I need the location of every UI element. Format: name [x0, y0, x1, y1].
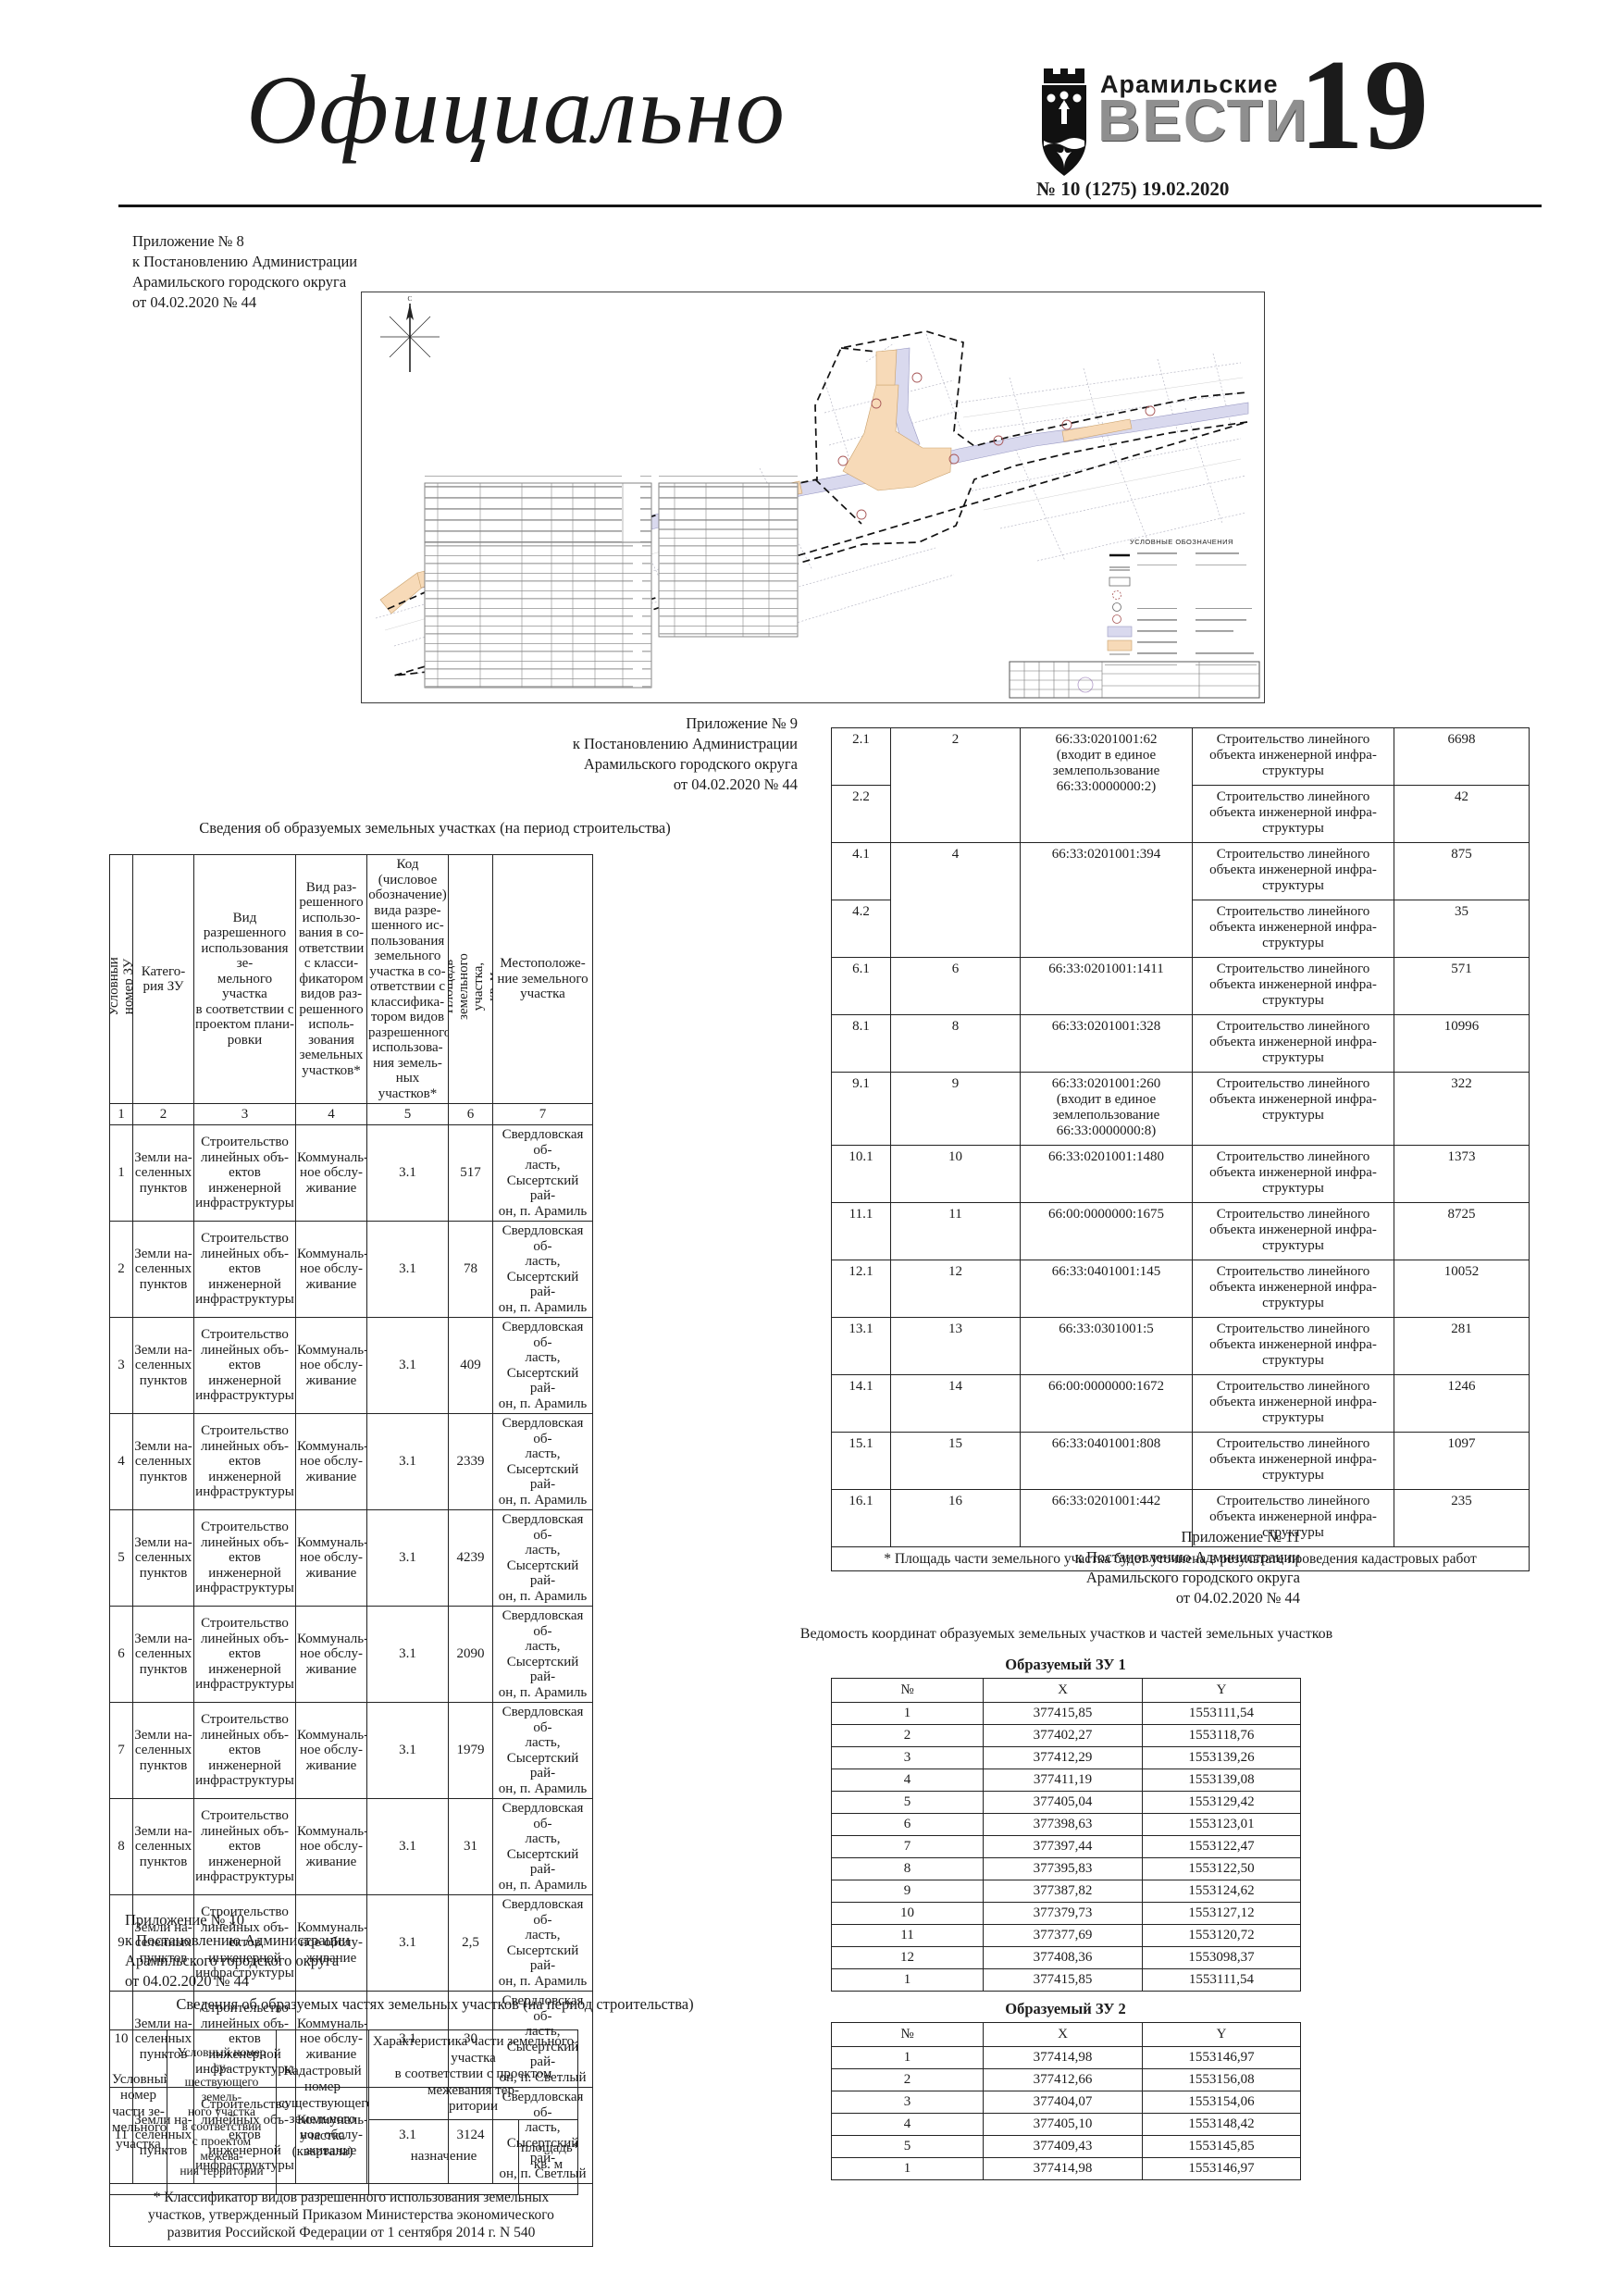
coordinate-row: 9377387,821553124,62: [832, 1880, 1301, 1903]
cell-x: 377387,82: [984, 1880, 1143, 1903]
cell-area: 31: [449, 1799, 493, 1895]
cell-x: 377414,98: [984, 2158, 1143, 2180]
table-row: 12.11266:33:0401001:145Строительство лин…: [832, 1260, 1530, 1318]
cell-number: 6: [110, 1607, 133, 1703]
table-header-row: №XY: [832, 1679, 1301, 1703]
coordinate-row: 5377409,431553145,85: [832, 2136, 1301, 2158]
cell-y: 1553118,76: [1143, 1725, 1301, 1747]
cell-x: 377412,66: [984, 2069, 1143, 2091]
city-coat-of-arms-icon: [1036, 63, 1092, 187]
cell-y: 1553122,47: [1143, 1836, 1301, 1858]
cell-x: 377412,29: [984, 1747, 1143, 1769]
cell-classifier-use: Коммуналь- ное обслу- живание: [296, 1607, 367, 1703]
page-number: 19: [1299, 41, 1429, 170]
brand-name-bottom: ВЕСТИ: [1097, 91, 1309, 150]
cell-code: 3.1: [367, 1125, 449, 1222]
col-header-area: площадь*, кв. м: [519, 2119, 578, 2194]
cell-category: Земли на- селенных пунктов: [133, 1703, 194, 1799]
newspaper-page: Официально Арамильские ВЕСТИ № 10 (1275)…: [0, 0, 1623, 2296]
cell-cadastral-number: 66:33:0201001:62 (входит в единое землеп…: [1021, 728, 1193, 843]
cell-y: 1553111,54: [1143, 1703, 1301, 1725]
col-header-№: №: [832, 1679, 984, 1703]
cell-number: 8: [110, 1799, 133, 1895]
col-header-y: Y: [1143, 2023, 1301, 2047]
cell-area: 10052: [1394, 1260, 1530, 1318]
table-row: 2.1266:33:0201001:62 (входит в единое зе…: [832, 728, 1530, 786]
cell-classifier-use: Коммуналь- ное обслу- живание: [296, 1510, 367, 1607]
cell-part-number: 6.1: [832, 958, 891, 1015]
cell-x: 377415,85: [984, 1703, 1143, 1725]
cell-part-number: 13.1: [832, 1318, 891, 1375]
cell-point-number: 6: [832, 1814, 984, 1836]
table-row: 7Земли на- селенных пунктовСтроительство…: [110, 1703, 593, 1799]
column-number: 2: [133, 1104, 194, 1125]
table-row: 15.11566:33:0401001:808Строительство лин…: [832, 1433, 1530, 1490]
cell-purpose: Строительство линейного объекта инженерн…: [1193, 1375, 1394, 1433]
cell-x: 377414,98: [984, 2047, 1143, 2069]
cell-area: 2339: [449, 1414, 493, 1510]
table-row: 14.11466:00:0000000:1672Строительство ли…: [832, 1375, 1530, 1433]
cell-area: 235: [1394, 1490, 1530, 1547]
cell-part-number: 2.1: [832, 728, 891, 786]
table-row: 11.11166:00:0000000:1675Строительство ли…: [832, 1203, 1530, 1260]
header-divider: [118, 205, 1542, 207]
table-row: 2Земли на- селенных пунктовСтроительство…: [110, 1222, 593, 1318]
cell-area: 322: [1394, 1073, 1530, 1146]
cell-point-number: 1: [832, 2158, 984, 2180]
coordinate-row: 10377379,731553127,12: [832, 1903, 1301, 1925]
cell-code: 3.1: [367, 1703, 449, 1799]
cell-code: 3.1: [367, 1414, 449, 1510]
cell-y: 1553145,85: [1143, 2136, 1301, 2158]
coordinate-row: 5377405,041553129,42: [832, 1792, 1301, 1814]
cell-y: 1553111,54: [1143, 1969, 1301, 1992]
cell-y: 1553148,42: [1143, 2114, 1301, 2136]
coordinate-row: 8377395,831553122,50: [832, 1858, 1301, 1880]
cell-x: 377377,69: [984, 1925, 1143, 1947]
col-header-code: Код (числовое обозначение) вида разре- ш…: [367, 855, 449, 1104]
column-number: 7: [493, 1104, 593, 1125]
cell-area: 35: [1394, 900, 1530, 958]
cell-cadastral-number: 66:00:0000000:1675: [1021, 1203, 1193, 1260]
cell-number: 4: [110, 1414, 133, 1510]
cell-y: 1553124,62: [1143, 1880, 1301, 1903]
cell-purpose: Строительство линейного объекта инженерн…: [1193, 1260, 1394, 1318]
cell-part-number: 4.1: [832, 843, 891, 900]
cell-x: 377398,63: [984, 1814, 1143, 1836]
cell-category: Земли на- селенных пунктов: [133, 1510, 194, 1607]
cell-code: 3.1: [367, 1799, 449, 1895]
cell-classifier-use: Коммуналь- ное обслу- живание: [296, 1703, 367, 1799]
cell-permitted-use: Строительство линейных объ- ектов инжене…: [194, 1510, 296, 1607]
column-number: 5: [367, 1104, 449, 1125]
cell-area: 517: [449, 1125, 493, 1222]
cell-part-number: 12.1: [832, 1260, 891, 1318]
cell-cadastral-number: 66:33:0201001:1411: [1021, 958, 1193, 1015]
col-header-existing-parcel: Условный номер су- ществующего земель- н…: [167, 2030, 277, 2195]
table-header-row: Условный номер ЗУ Катего- рия ЗУ Вид раз…: [110, 855, 593, 1104]
cell-classifier-use: Коммуналь- ное обслу- живание: [296, 1222, 367, 1318]
cell-area: 6698: [1394, 728, 1530, 786]
cell-area: 281: [1394, 1318, 1530, 1375]
cell-y: 1553146,97: [1143, 2047, 1301, 2069]
coordinate-row: 1377414,981553146,97: [832, 2158, 1301, 2180]
appendix-9-caption: Приложение № 9 к Постановлению Администр…: [435, 714, 798, 795]
table-row: 8Земли на- селенных пунктовСтроительство…: [110, 1799, 593, 1895]
coordinate-row: 12377408,361553098,37: [832, 1947, 1301, 1969]
coordinate-row: 4377411,191553139,08: [832, 1769, 1301, 1792]
cell-purpose: Строительство линейного объекта инженерн…: [1193, 1318, 1394, 1375]
coordinates-list-title: Ведомость координат образуемых земельных…: [796, 1626, 1337, 1643]
column-number: 4: [296, 1104, 367, 1125]
cell-x: 377405,10: [984, 2114, 1143, 2136]
cell-y: 1553139,26: [1143, 1747, 1301, 1769]
zu1-heading: Образуемый ЗУ 1: [831, 1656, 1300, 1674]
col-header-characteristic: Характеристика части земельного участка …: [369, 2030, 578, 2120]
cell-point-number: 7: [832, 1836, 984, 1858]
column-number: 3: [194, 1104, 296, 1125]
cell-parcel-number: 4: [891, 843, 1021, 958]
cell-y: 1553129,42: [1143, 1792, 1301, 1814]
cell-x: 377395,83: [984, 1858, 1143, 1880]
cell-category: Земли на- селенных пунктов: [133, 1414, 194, 1510]
zu2-heading: Образуемый ЗУ 2: [831, 2000, 1300, 2018]
coordinate-row: 1377414,981553146,97: [832, 2047, 1301, 2069]
coordinate-row: 1377415,851553111,54: [832, 1703, 1301, 1725]
cell-area: 8725: [1394, 1203, 1530, 1260]
cell-number: 2: [110, 1222, 133, 1318]
cell-y: 1553120,72: [1143, 1925, 1301, 1947]
cell-code: 3.1: [367, 1318, 449, 1414]
table-row: 4.1466:33:0201001:394Строительство линей…: [832, 843, 1530, 900]
cell-y: 1553156,08: [1143, 2069, 1301, 2091]
cell-category: Земли на- селенных пунктов: [133, 1125, 194, 1222]
cell-point-number: 12: [832, 1947, 984, 1969]
cell-parcel-number: 9: [891, 1073, 1021, 1146]
cell-parcel-number: 11: [891, 1203, 1021, 1260]
table-row: 5Земли на- селенных пунктовСтроительство…: [110, 1510, 593, 1607]
compass-icon: С: [380, 295, 440, 372]
cell-category: Земли на- селенных пунктов: [133, 1799, 194, 1895]
cell-classifier-use: Коммуналь- ное обслу- живание: [296, 1125, 367, 1222]
cell-area: 2090: [449, 1607, 493, 1703]
cell-area: 1979: [449, 1703, 493, 1799]
col-header-x: X: [984, 1679, 1143, 1703]
zu-table-title: Сведения об образуемых земельных участка…: [83, 819, 787, 838]
cell-cadastral-number: 66:33:0201001:1480: [1021, 1146, 1193, 1203]
cell-point-number: 1: [832, 1703, 984, 1725]
table-row: 9.1966:33:0201001:260 (входит в единое з…: [832, 1073, 1530, 1146]
cell-cadastral-number: 66:00:0000000:1672: [1021, 1375, 1193, 1433]
cell-category: Земли на- селенных пунктов: [133, 1318, 194, 1414]
table-row: 6Земли на- селенных пунктовСтроительство…: [110, 1607, 593, 1703]
cell-code: 3.1: [367, 1510, 449, 1607]
cell-cadastral-number: 66:33:0201001:394: [1021, 843, 1193, 958]
cell-permitted-use: Строительство линейных объ- ектов инжене…: [194, 1414, 296, 1510]
col-header-purpose: назначение: [369, 2119, 519, 2194]
cell-point-number: 3: [832, 1747, 984, 1769]
cell-purpose: Строительство линейного объекта инженерн…: [1193, 728, 1394, 786]
cell-x: 377408,36: [984, 1947, 1143, 1969]
cell-purpose: Строительство линейного объекта инженерн…: [1193, 900, 1394, 958]
cell-code: 3.1: [367, 1222, 449, 1318]
cell-parcel-number: 14: [891, 1375, 1021, 1433]
table-header-row: №XY: [832, 2023, 1301, 2047]
cell-point-number: 2: [832, 2069, 984, 2091]
coordinate-row: 4377405,101553148,42: [832, 2114, 1301, 2136]
parts-table-title: Сведения об образуемых частях земельных …: [83, 1995, 787, 2014]
cell-code: 3.1: [367, 1895, 449, 1992]
cell-area: 4239: [449, 1510, 493, 1607]
cell-x: 377379,73: [984, 1903, 1143, 1925]
parts-header-table: Условный номер части зе- мельного участк…: [109, 2029, 578, 2195]
coordinate-row: 3377412,291553139,26: [832, 1747, 1301, 1769]
cell-x: 377405,04: [984, 1792, 1143, 1814]
column-number: 1: [110, 1104, 133, 1125]
cell-category: Земли на- селенных пунктов: [133, 1222, 194, 1318]
cell-location: Свердловская об- ласть, Сысертский рай- …: [493, 1703, 593, 1799]
col-header-permitted-use: Вид разрешенного использования зе- мельн…: [194, 855, 296, 1104]
cell-area: 1373: [1394, 1146, 1530, 1203]
cell-area: 571: [1394, 958, 1530, 1015]
cell-x: 377415,85: [984, 1969, 1143, 1992]
cell-area: 10996: [1394, 1015, 1530, 1073]
coordinate-row: 2377402,271553118,76: [832, 1725, 1301, 1747]
cell-point-number: 5: [832, 2136, 984, 2158]
cell-cadastral-number: 66:33:0201001:328: [1021, 1015, 1193, 1073]
appendix-10-caption: Приложение № 10 к Постановлению Админист…: [125, 1910, 350, 1992]
svg-text:УСЛОВНЫЕ ОБОЗНАЧЕНИЯ: УСЛОВНЫЕ ОБОЗНАЧЕНИЯ: [1130, 538, 1233, 546]
cell-location: Свердловская об- ласть, Сысертский рай- …: [493, 1510, 593, 1607]
cell-part-number: 14.1: [832, 1375, 891, 1433]
table-header-row: Условный номер части зе- мельного участк…: [110, 2030, 578, 2120]
cell-y: 1553122,50: [1143, 1858, 1301, 1880]
cell-area: 78: [449, 1222, 493, 1318]
cell-category: Земли на- селенных пунктов: [133, 1607, 194, 1703]
cell-y: 1553139,08: [1143, 1769, 1301, 1792]
coordinate-row: 1377415,851553111,54: [832, 1969, 1301, 1992]
cell-number: 7: [110, 1703, 133, 1799]
cell-cadastral-number: 66:33:0201001:260 (входит в единое земле…: [1021, 1073, 1193, 1146]
cell-purpose: Строительство линейного объекта инженерн…: [1193, 958, 1394, 1015]
cell-classifier-use: Коммуналь- ное обслу- живание: [296, 1318, 367, 1414]
cell-point-number: 10: [832, 1903, 984, 1925]
cell-location: Свердловская об- ласть, Сысертский рай- …: [493, 1318, 593, 1414]
cell-area: 1246: [1394, 1375, 1530, 1433]
cell-point-number: 8: [832, 1858, 984, 1880]
cell-cadastral-number: 66:33:0401001:808: [1021, 1433, 1193, 1490]
cell-point-number: 9: [832, 1880, 984, 1903]
table-row: 10.11066:33:0201001:1480Строительство ли…: [832, 1146, 1530, 1203]
cell-point-number: 2: [832, 1725, 984, 1747]
cell-point-number: 3: [832, 2091, 984, 2114]
cell-permitted-use: Строительство линейных объ- ектов инжене…: [194, 1222, 296, 1318]
map-legend: УСЛОВНЫЕ ОБОЗНАЧЕНИЯ: [1108, 538, 1254, 660]
cell-area: 1097: [1394, 1433, 1530, 1490]
cell-permitted-use: Строительство линейных объ- ектов инжене…: [194, 1607, 296, 1703]
cell-y: 1553154,06: [1143, 2091, 1301, 2114]
cell-location: Свердловская об- ласть, Сысертский рай- …: [493, 1895, 593, 1992]
cell-permitted-use: Строительство линейных объ- ектов инжене…: [194, 1125, 296, 1222]
svg-text:С: С: [408, 295, 413, 303]
cell-part-number: 15.1: [832, 1433, 891, 1490]
appendix-11-caption: Приложение № 11 к Постановлению Админист…: [831, 1527, 1300, 1608]
column-number: 6: [449, 1104, 493, 1125]
col-header-cadastral-number: Кадастровый номер существующего земельно…: [277, 2030, 369, 2195]
cell-parcel-number: 10: [891, 1146, 1021, 1203]
cell-classifier-use: Коммуналь- ное обслу- живание: [296, 1799, 367, 1895]
cell-point-number: 1: [832, 2047, 984, 2069]
cell-area: 42: [1394, 786, 1530, 843]
cell-number: 3: [110, 1318, 133, 1414]
col-header-part-number: Условный номер части зе- мельного участк…: [110, 2030, 167, 2195]
appendix-8-caption: Приложение № 8 к Постановлению Администр…: [132, 231, 357, 313]
map-title-block: [1010, 662, 1259, 698]
col-header-conditional-number: Условный номер ЗУ: [110, 855, 133, 1104]
cell-y: 1553127,12: [1143, 1903, 1301, 1925]
cell-part-number: 2.2: [832, 786, 891, 843]
map-inset-table-left: [425, 476, 651, 688]
cell-number: 5: [110, 1510, 133, 1607]
cell-cadastral-number: 66:33:0301001:5: [1021, 1318, 1193, 1375]
cell-purpose: Строительство линейного объекта инженерн…: [1193, 786, 1394, 843]
cell-point-number: 5: [832, 1792, 984, 1814]
coordinate-row: 11377377,691553120,72: [832, 1925, 1301, 1947]
cell-parcel-number: 12: [891, 1260, 1021, 1318]
cell-purpose: Строительство линейного объекта инженерн…: [1193, 1433, 1394, 1490]
cell-location: Свердловская об- ласть, Сысертский рай- …: [493, 1799, 593, 1895]
col-header-location: Местоположе- ние земельного участка: [493, 855, 593, 1104]
cell-area: 875: [1394, 843, 1530, 900]
cell-parcel-number: 6: [891, 958, 1021, 1015]
table-row: 4Земли на- селенных пунктовСтроительство…: [110, 1414, 593, 1510]
cell-part-number: 10.1: [832, 1146, 891, 1203]
table-row: 3Земли на- селенных пунктовСтроительство…: [110, 1318, 593, 1414]
cell-permitted-use: Строительство линейных объ- ектов инжене…: [194, 1318, 296, 1414]
section-title: Официально: [220, 54, 812, 167]
cell-y: 1553123,01: [1143, 1814, 1301, 1836]
col-header-classifier-use: Вид раз- решенного использо- вания в со-…: [296, 855, 367, 1104]
cell-point-number: 11: [832, 1925, 984, 1947]
map-inset-table-right: [659, 476, 798, 637]
cell-purpose: Строительство линейного объекта инженерн…: [1193, 1073, 1394, 1146]
cell-permitted-use: Строительство линейных объ- ектов инжене…: [194, 1703, 296, 1799]
cell-parcel-number: 8: [891, 1015, 1021, 1073]
col-header-x: X: [984, 2023, 1143, 2047]
cell-permitted-use: Строительство линейных объ- ектов инжене…: [194, 1799, 296, 1895]
cell-point-number: 4: [832, 1769, 984, 1792]
table-row: 13.11366:33:0301001:5Строительство линей…: [832, 1318, 1530, 1375]
cell-purpose: Строительство линейного объекта инженерн…: [1193, 1203, 1394, 1260]
zu2-coordinates-table: №XY 1377414,981553146,972377412,66155315…: [831, 2022, 1301, 2180]
cell-number: 1: [110, 1125, 133, 1222]
cell-purpose: Строительство линейного объекта инженерн…: [1193, 1015, 1394, 1073]
coordinate-row: 2377412,661553156,08: [832, 2069, 1301, 2091]
cell-cadastral-number: 66:33:0401001:145: [1021, 1260, 1193, 1318]
cell-point-number: 1: [832, 1969, 984, 1992]
cell-x: 377411,19: [984, 1769, 1143, 1792]
cell-area: 409: [449, 1318, 493, 1414]
cell-purpose: Строительство линейного объекта инженерн…: [1193, 843, 1394, 900]
site-plan-map: С: [361, 292, 1265, 703]
cell-parcel-number: 2: [891, 728, 1021, 843]
col-header-№: №: [832, 2023, 984, 2047]
table-row: 8.1866:33:0201001:328Строительство линей…: [832, 1015, 1530, 1073]
cell-purpose: Строительство линейного объекта инженерн…: [1193, 1146, 1394, 1203]
col-header-category: Катего- рия ЗУ: [133, 855, 194, 1104]
cell-location: Свердловская об- ласть, Сысертский рай- …: [493, 1607, 593, 1703]
col-header-y: Y: [1143, 1679, 1301, 1703]
cell-point-number: 4: [832, 2114, 984, 2136]
zu1-coordinates-table: №XY 1377415,851553111,542377402,27155311…: [831, 1678, 1301, 1992]
cell-x: 377404,07: [984, 2091, 1143, 2114]
cell-x: 377402,27: [984, 1725, 1143, 1747]
col-header-area: Площадь земельного участка, кв. м: [449, 855, 493, 1104]
cell-code: 3.1: [367, 1607, 449, 1703]
coordinate-row: 7377397,441553122,47: [832, 1836, 1301, 1858]
coordinate-row: 6377398,631553123,01: [832, 1814, 1301, 1836]
parts-continuation-table: 2.1266:33:0201001:62 (входит в единое зе…: [831, 727, 1530, 1571]
table-row: 6.1666:33:0201001:1411Строительство лине…: [832, 958, 1530, 1015]
issue-number: № 10 (1275) 19.02.2020: [1036, 178, 1277, 201]
cell-y: 1553146,97: [1143, 2158, 1301, 2180]
cell-part-number: 9.1: [832, 1073, 891, 1146]
column-number-row: 1234567: [110, 1104, 593, 1125]
cell-area: 2,5: [449, 1895, 493, 1992]
cell-x: 377409,43: [984, 2136, 1143, 2158]
cell-y: 1553098,37: [1143, 1947, 1301, 1969]
cell-location: Свердловская об- ласть, Сысертский рай- …: [493, 1414, 593, 1510]
cell-parcel-number: 15: [891, 1433, 1021, 1490]
coordinate-row: 3377404,071553154,06: [832, 2091, 1301, 2114]
cell-location: Свердловская об- ласть, Сысертский рай- …: [493, 1222, 593, 1318]
cell-part-number: 8.1: [832, 1015, 891, 1073]
cell-x: 377397,44: [984, 1836, 1143, 1858]
cell-part-number: 4.2: [832, 900, 891, 958]
table-row: 1Земли на- селенных пунктовСтроительство…: [110, 1125, 593, 1222]
cell-classifier-use: Коммуналь- ное обслу- живание: [296, 1414, 367, 1510]
cell-location: Свердловская об- ласть, Сысертский рай- …: [493, 1125, 593, 1222]
cell-parcel-number: 13: [891, 1318, 1021, 1375]
cell-part-number: 11.1: [832, 1203, 891, 1260]
